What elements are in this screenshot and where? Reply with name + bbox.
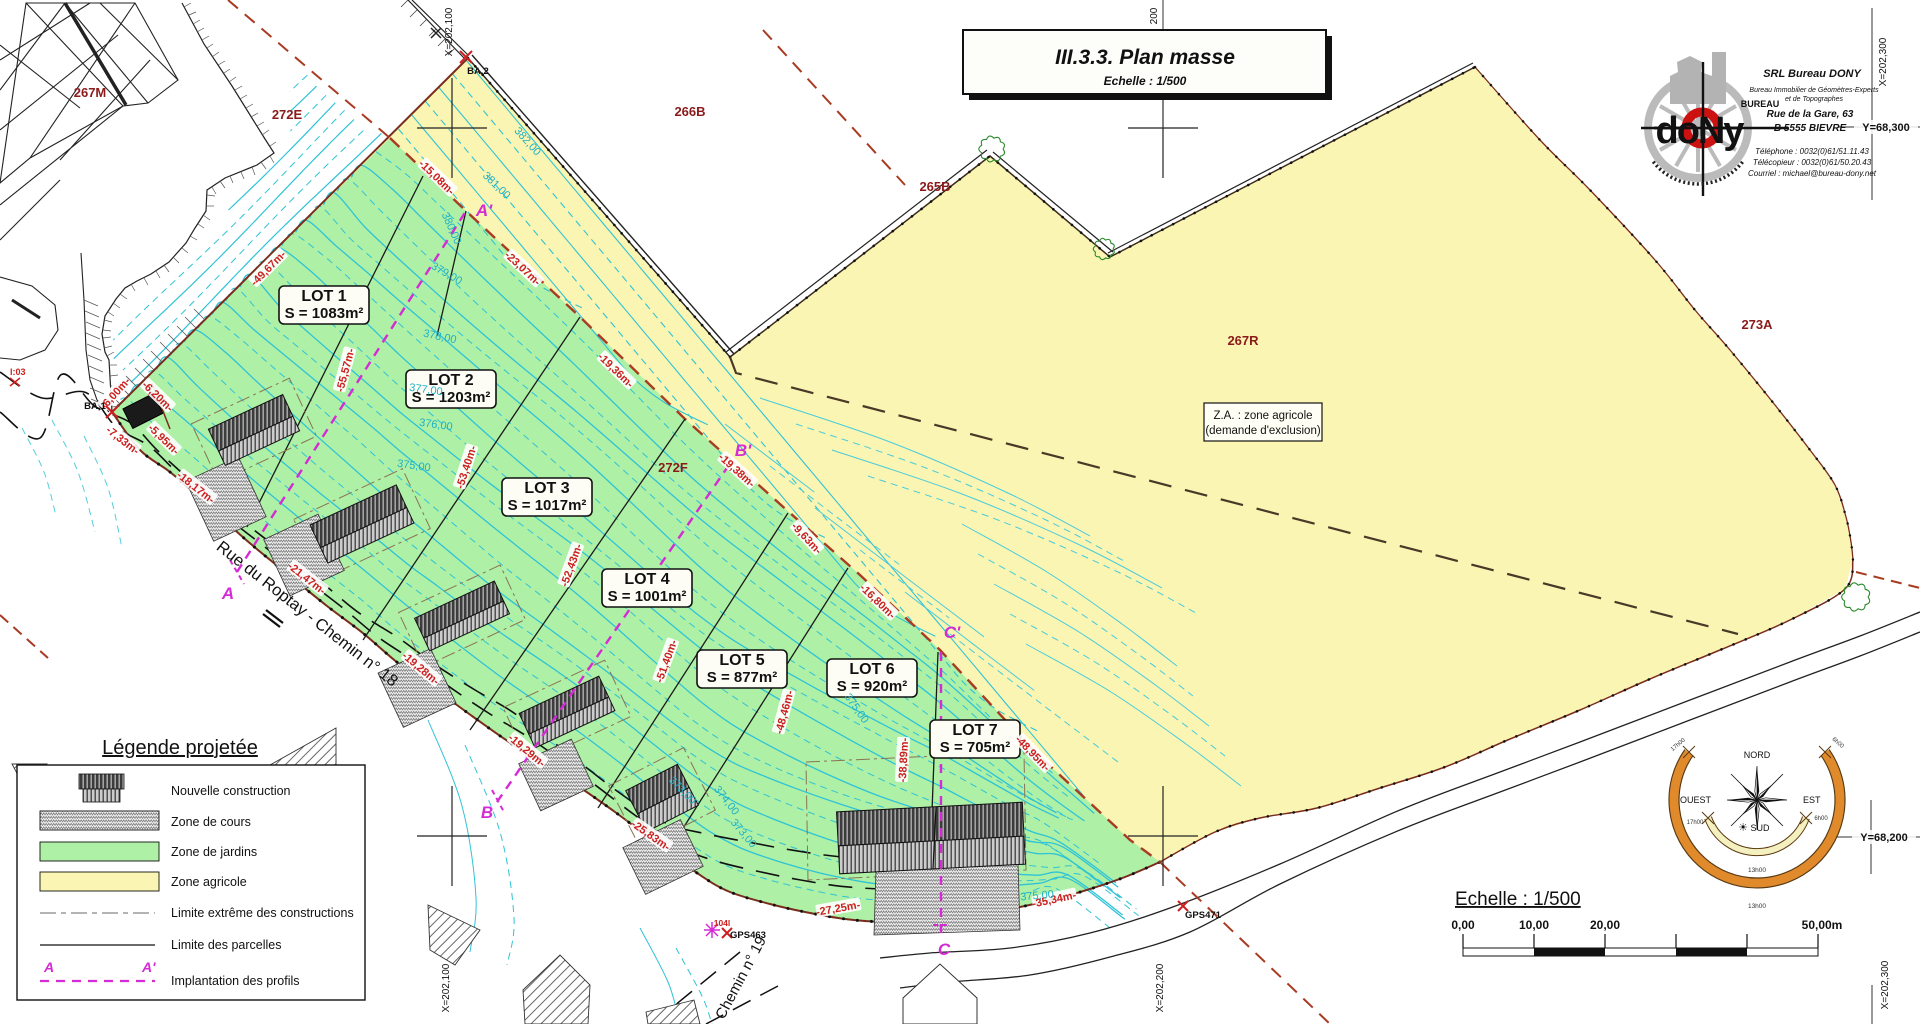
svg-text:Zone de jardins: Zone de jardins	[171, 845, 257, 859]
svg-text:Rue de la Gare, 63: Rue de la Gare, 63	[1767, 109, 1854, 120]
svg-text:C: C	[938, 940, 951, 959]
svg-text:266B: 266B	[674, 104, 705, 119]
svg-text:LOT 5: LOT 5	[719, 652, 764, 669]
svg-text:et de Topographes: et de Topographes	[1785, 96, 1844, 103]
svg-text:S = 705m²: S = 705m²	[940, 739, 1010, 756]
svg-text:NORD: NORD	[1744, 750, 1771, 760]
svg-text:272F: 272F	[658, 460, 688, 475]
svg-text:17h00: 17h00	[1687, 820, 1704, 826]
svg-text:BA,2: BA,2	[467, 66, 489, 77]
svg-text:A': A'	[475, 201, 493, 220]
svg-text:Y=68,200: Y=68,200	[1860, 832, 1907, 844]
svg-text:X=202,100: X=202,100	[441, 963, 452, 1012]
svg-text:EST: EST	[1803, 795, 1821, 805]
svg-text:Limite des parcelles: Limite des parcelles	[171, 938, 281, 952]
svg-text:B: B	[481, 803, 493, 822]
svg-text:S = 877m²: S = 877m²	[707, 669, 777, 686]
svg-text:S = 1001m²: S = 1001m²	[608, 588, 687, 605]
svg-text:6h00: 6h00	[1814, 816, 1828, 822]
svg-text:Bureau Immobilier de Géomètres: Bureau Immobilier de Géomètres-Experts	[1749, 87, 1879, 94]
svg-text:X=202,300: X=202,300	[1878, 37, 1889, 86]
svg-text:13h00: 13h00	[1748, 903, 1766, 910]
svg-text:LOT 3: LOT 3	[524, 480, 569, 497]
svg-text:Z.A. : zone agricole: Z.A. : zone agricole	[1213, 410, 1312, 422]
svg-text:A: A	[43, 959, 54, 975]
svg-text:BA,1: BA,1	[84, 401, 106, 412]
svg-text:SUD: SUD	[1750, 823, 1770, 833]
svg-text:A: A	[221, 584, 234, 603]
svg-text:Limite extrême des constructio: Limite extrême des constructions	[171, 906, 354, 920]
svg-text:272E: 272E	[272, 107, 303, 122]
svg-text:S = 1083m²: S = 1083m²	[285, 305, 364, 322]
svg-text:273A: 273A	[1741, 317, 1773, 332]
svg-text:Télécopieur : 0032(0)61/50.20.: Télécopieur : 0032(0)61/50.20.43	[1753, 158, 1872, 167]
svg-text:LOT 4: LOT 4	[624, 571, 669, 588]
svg-text:B 5555 BIEVRE: B 5555 BIEVRE	[1774, 123, 1847, 134]
svg-text:Zone agricole: Zone agricole	[171, 875, 247, 889]
svg-text:X=202,300: X=202,300	[1880, 960, 1891, 1009]
svg-text:20,00: 20,00	[1590, 918, 1620, 932]
svg-text:267R: 267R	[1227, 333, 1259, 348]
svg-text:Echelle : 1/500: Echelle : 1/500	[1455, 889, 1581, 910]
svg-text:267M: 267M	[74, 85, 107, 100]
svg-text:Y=68,300: Y=68,300	[1862, 122, 1909, 134]
svg-text:Echelle : 1/500: Echelle : 1/500	[1104, 74, 1187, 88]
svg-text:Implantation des profils: Implantation des profils	[171, 974, 300, 988]
svg-text:104l: 104l	[714, 918, 731, 928]
svg-text:265B: 265B	[919, 179, 950, 194]
svg-text:BUREAU: BUREAU	[1741, 99, 1780, 109]
svg-text:10,00: 10,00	[1519, 918, 1549, 932]
svg-text:-38,89m-: -38,89m-	[897, 737, 911, 783]
svg-text:SRL Bureau DONY: SRL Bureau DONY	[1763, 68, 1862, 80]
svg-text:X=202,100: X=202,100	[444, 7, 455, 56]
svg-text:Courriel : michael@bureau-dony: Courriel : michael@bureau-dony.net	[1748, 169, 1877, 178]
svg-text:Nouvelle construction: Nouvelle construction	[171, 784, 291, 798]
svg-text:200: 200	[1149, 7, 1160, 24]
svg-text:0,00: 0,00	[1451, 918, 1475, 932]
svg-text:LOT 1: LOT 1	[301, 288, 346, 305]
svg-text:A': A'	[141, 959, 156, 975]
svg-text:LOT 6: LOT 6	[849, 661, 894, 678]
svg-text:III.3.3. Plan masse: III.3.3. Plan masse	[1055, 46, 1235, 69]
svg-text:l:03: l:03	[10, 367, 26, 377]
svg-text:GPS471: GPS471	[1185, 910, 1222, 921]
svg-text:Légende projetée: Légende projetée	[102, 737, 258, 759]
svg-text:S = 920m²: S = 920m²	[837, 678, 907, 695]
svg-text:doNy: doNy	[1656, 110, 1745, 152]
svg-text:Téléphone : 0032(0)61/51.11.43: Téléphone : 0032(0)61/51.11.43	[1755, 147, 1869, 156]
svg-text:13h00: 13h00	[1748, 867, 1766, 874]
svg-text:50,00m: 50,00m	[1802, 918, 1843, 932]
svg-text:Zone de cours: Zone de cours	[171, 815, 251, 829]
svg-text:LOT 7: LOT 7	[952, 722, 997, 739]
svg-text:OUEST: OUEST	[1680, 795, 1712, 805]
svg-text:☀: ☀	[1738, 822, 1748, 834]
svg-text:(demande d'exclusion): (demande d'exclusion)	[1205, 425, 1321, 437]
svg-text:S = 1017m²: S = 1017m²	[508, 497, 587, 514]
svg-text:C': C'	[944, 623, 961, 642]
svg-text:B': B'	[735, 441, 752, 460]
svg-text:X=202,200: X=202,200	[1155, 963, 1166, 1012]
